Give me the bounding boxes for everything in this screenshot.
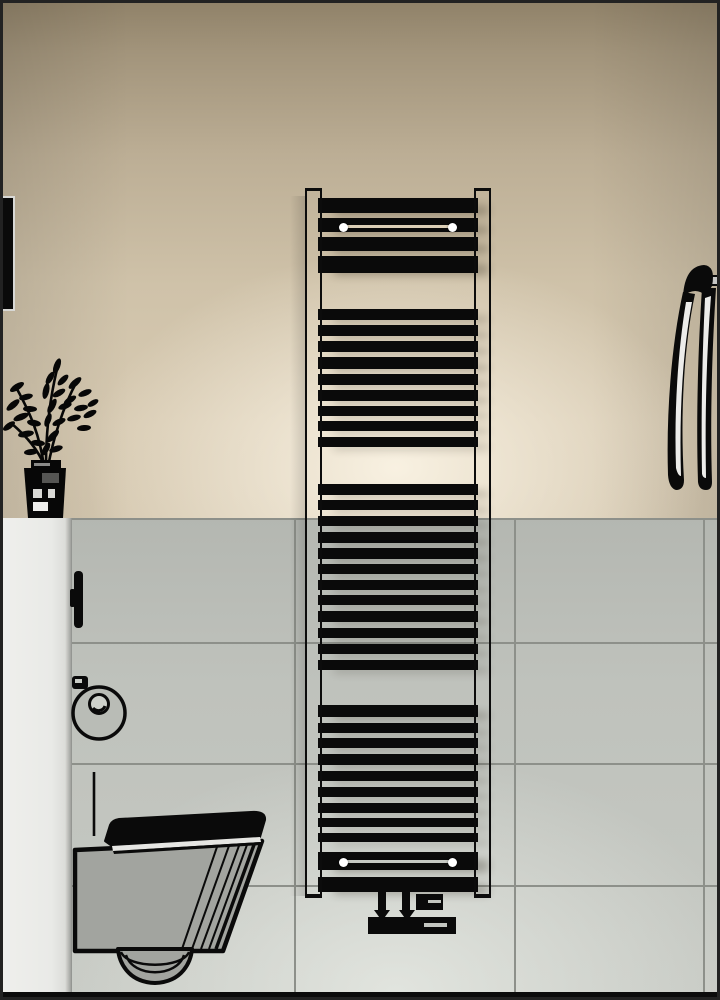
mount-dot (339, 223, 348, 232)
grout-line-vertical (703, 518, 705, 992)
radiator-rung (318, 390, 478, 401)
radiator-rung (318, 256, 478, 273)
towel-fold-top (683, 265, 713, 296)
plant-pot (24, 460, 66, 518)
radiator-rung (318, 754, 478, 765)
wall-frame-sliver (2, 196, 15, 311)
toilet-drain (118, 949, 192, 983)
radiator-rung (318, 628, 478, 638)
radiator-rung (318, 738, 478, 748)
radiator-rung (318, 237, 478, 251)
radiator-rung (318, 357, 478, 369)
plant-leaves (2, 357, 100, 456)
radiator-rung (318, 833, 478, 842)
mount-bracket-line (344, 225, 452, 228)
valve-slit (424, 923, 447, 927)
floor-line (0, 992, 720, 1000)
radiator-rung (318, 500, 478, 510)
potted-plant (0, 353, 112, 521)
radiator-rung (318, 611, 478, 622)
radiator-rung (318, 595, 478, 605)
mount-bracket-line (344, 860, 452, 863)
wall-hung-toilet (55, 755, 295, 990)
radiator-rung (318, 341, 478, 352)
radiator-rung (318, 787, 478, 797)
mount-dot (448, 223, 457, 232)
radiator-rail-right (474, 188, 491, 898)
hanging-towel (650, 250, 720, 500)
paper-holder-group (60, 565, 140, 745)
mount-dot (339, 858, 348, 867)
mount-dot (448, 858, 457, 867)
radiator-rung (318, 548, 478, 559)
radiator-rung (318, 484, 478, 495)
bathroom-scene (0, 0, 720, 1000)
radiator-rung (318, 660, 478, 670)
radiator-rung (318, 644, 478, 654)
grout-line-vertical (514, 518, 516, 992)
radiator-rung (318, 406, 478, 416)
radiator-rung (318, 803, 478, 813)
radiator-rung (318, 877, 478, 892)
radiator-rung (318, 723, 478, 733)
radiator-rung (318, 374, 478, 385)
radiator-rung (318, 771, 478, 781)
radiator-rung (318, 705, 478, 717)
panel-handle (74, 571, 83, 628)
radiator-rail-left (305, 188, 322, 898)
radiator-rung (318, 309, 478, 320)
radiator-rung (318, 421, 478, 431)
radiator-rung (318, 325, 478, 336)
radiator-rung (318, 580, 478, 590)
radiator-rung (318, 437, 478, 447)
radiator-rung (318, 564, 478, 574)
radiator-rung (318, 818, 478, 827)
radiator-rung (318, 198, 478, 213)
radiator-rung (318, 516, 478, 526)
valve-slit (428, 900, 441, 903)
radiator-rung (318, 532, 478, 543)
